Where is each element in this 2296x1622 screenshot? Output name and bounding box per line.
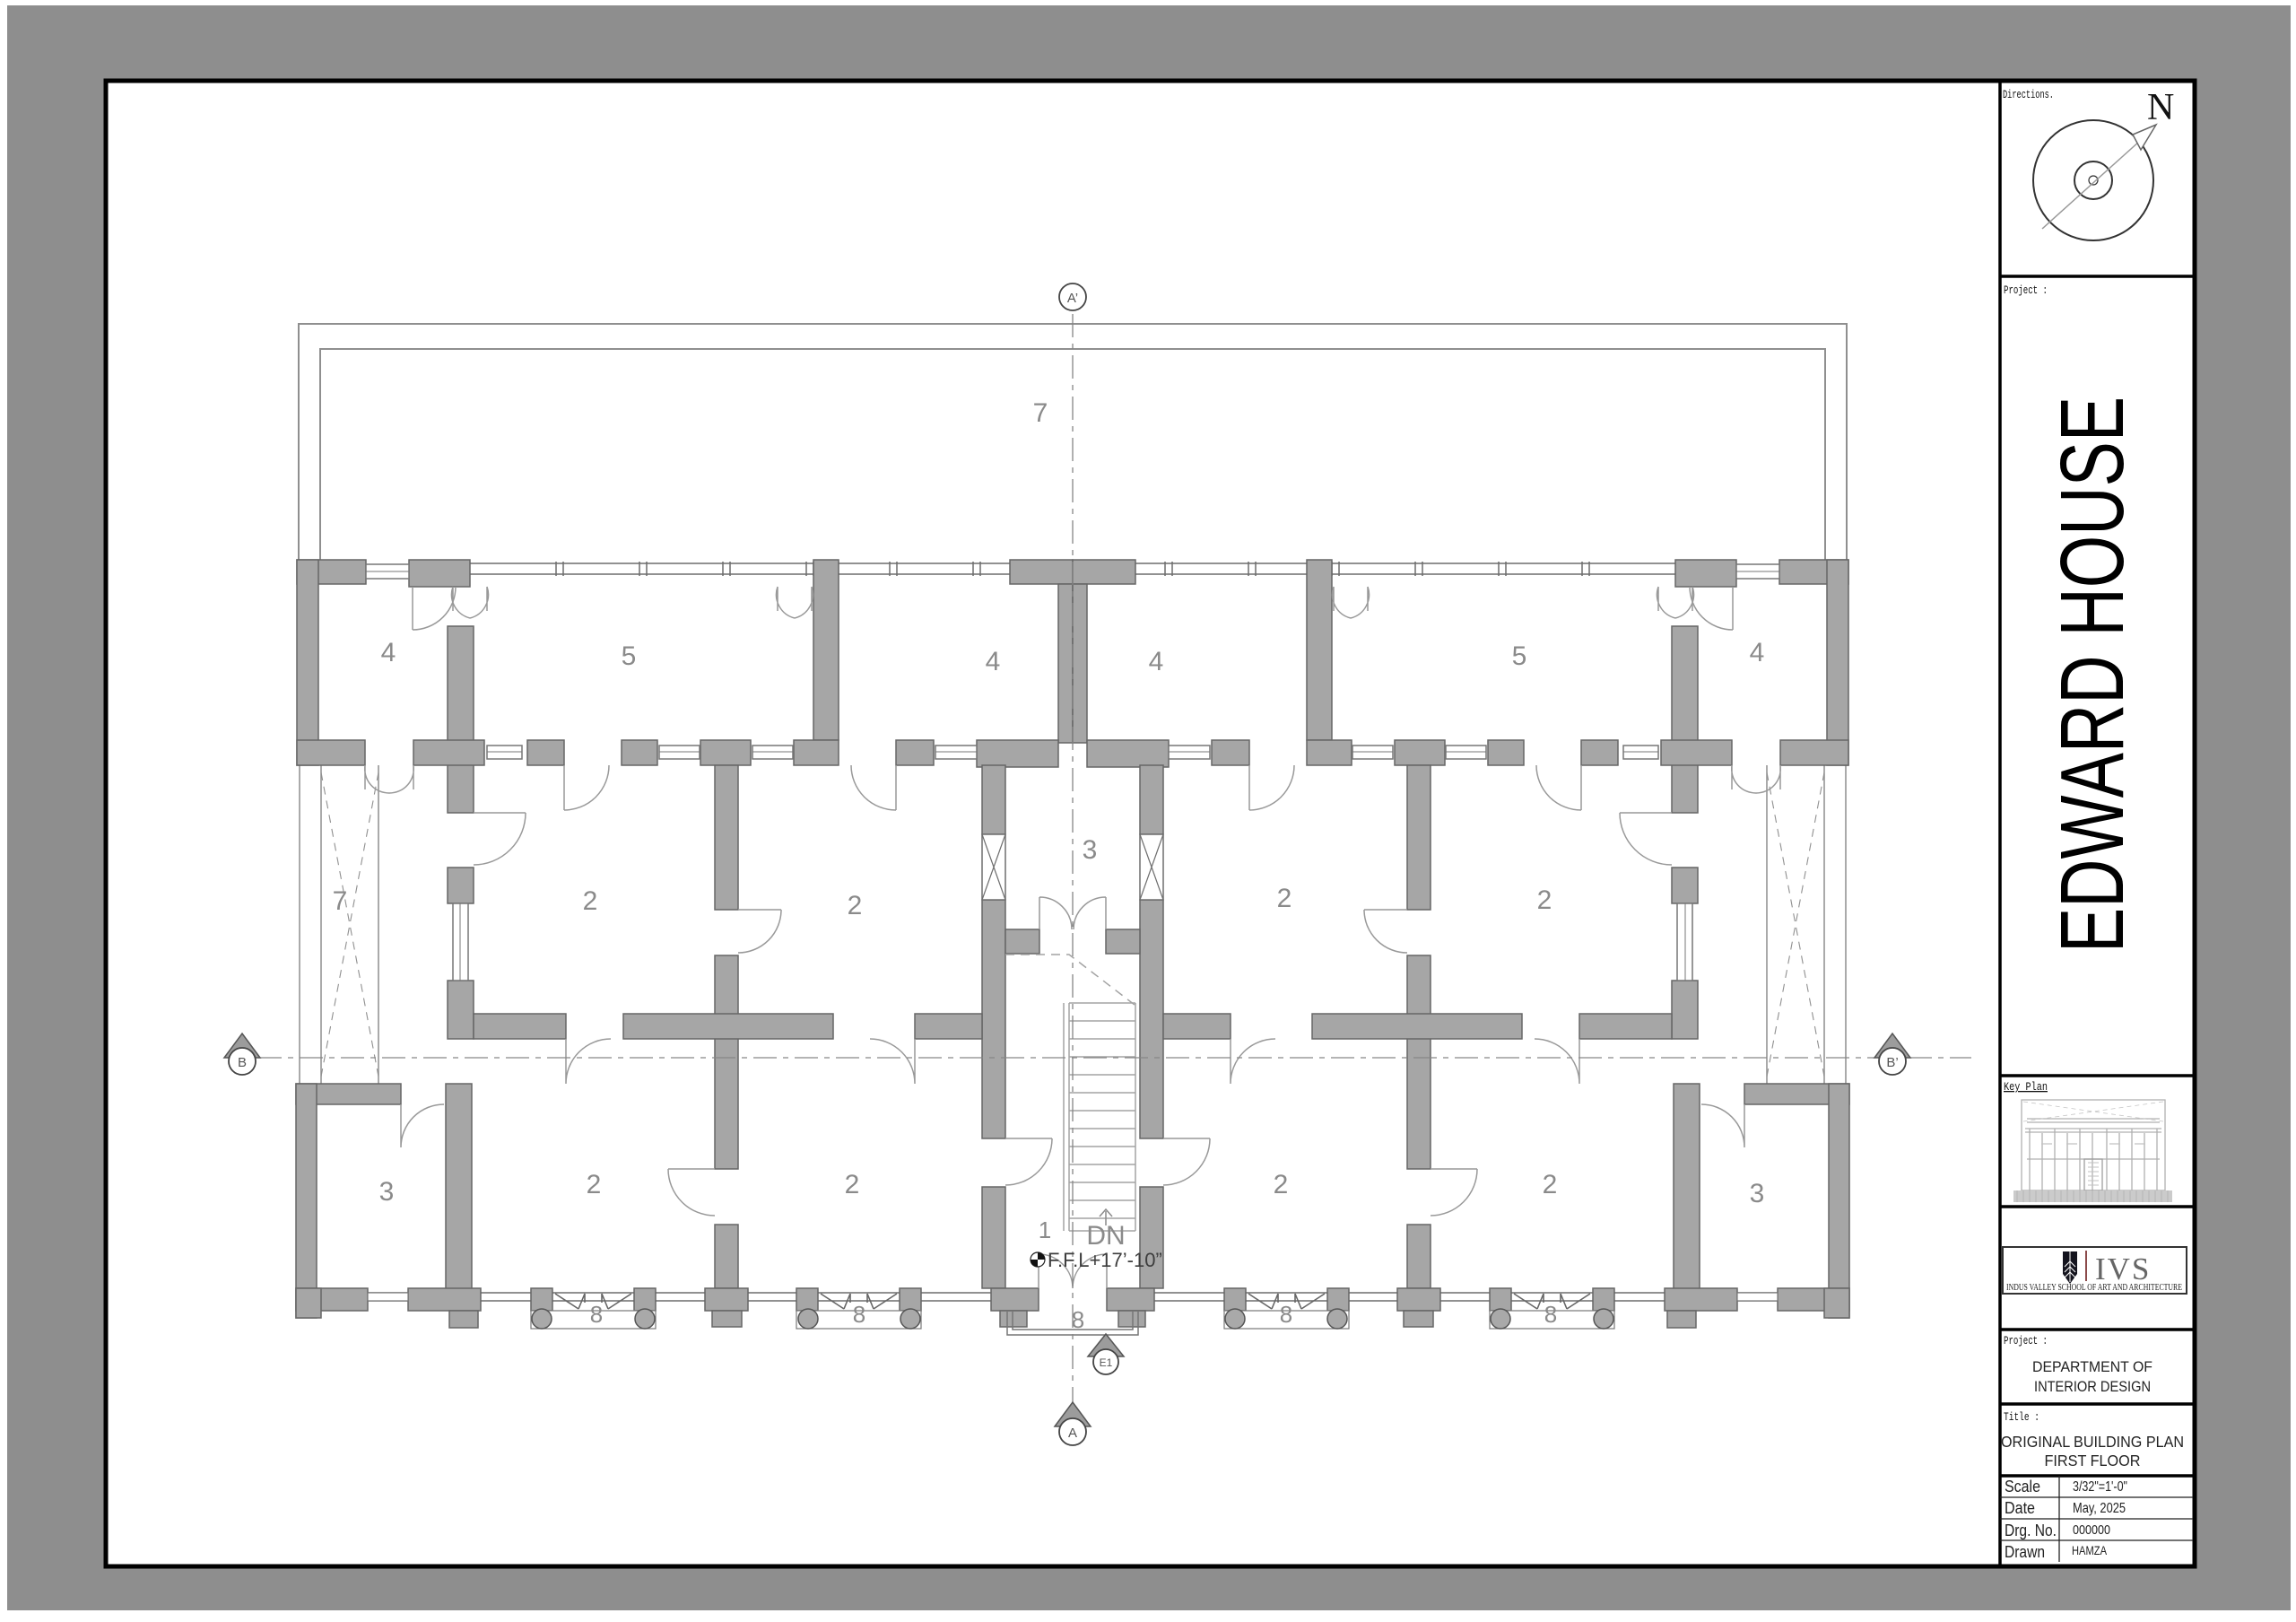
svg-text:4: 4 (1149, 647, 1164, 676)
svg-text:Drawn: Drawn (2005, 1543, 2045, 1561)
svg-text:2: 2 (1274, 1170, 1289, 1199)
svg-text:4: 4 (986, 647, 1001, 676)
svg-text:8: 8 (1544, 1301, 1557, 1328)
svg-text:2: 2 (1543, 1170, 1558, 1199)
svg-text:3: 3 (1083, 835, 1098, 865)
svg-text:B: B (238, 1055, 247, 1070)
svg-text:Title :: Title : (2004, 1410, 2039, 1424)
svg-text:5: 5 (622, 641, 637, 671)
svg-text:2: 2 (583, 886, 598, 916)
svg-text:Directions.: Directions. (2003, 88, 2054, 101)
svg-text:Project :: Project : (2004, 283, 2048, 297)
svg-text:N: N (2147, 87, 2174, 128)
svg-text:8: 8 (1280, 1301, 1292, 1328)
svg-text:000000: 000000 (2073, 1522, 2110, 1538)
svg-text:3: 3 (1750, 1179, 1765, 1208)
svg-text:2: 2 (845, 1170, 860, 1199)
svg-text:2: 2 (1537, 885, 1552, 915)
svg-text:3: 3 (379, 1177, 395, 1207)
svg-text:8: 8 (590, 1301, 603, 1328)
svg-text:EDWARD HOUSE: EDWARD HOUSE (2042, 397, 2143, 953)
svg-text:E1: E1 (1100, 1356, 1113, 1369)
svg-text:A’: A’ (1067, 291, 1078, 306)
svg-text:8: 8 (1072, 1306, 1084, 1333)
svg-text:INDUS VALLEY SCHOOL OF ART AND: INDUS VALLEY SCHOOL OF ART AND ARCHITECT… (2006, 1282, 2182, 1293)
svg-text:ORIGINAL BUILDING PLAN: ORIGINAL BUILDING PLAN (2001, 1433, 2184, 1451)
svg-text:Key Plan: Key Plan (2004, 1080, 2048, 1094)
svg-text:5: 5 (1512, 641, 1527, 671)
svg-text:Date: Date (2005, 1499, 2035, 1517)
svg-text:B’: B’ (1886, 1055, 1898, 1070)
svg-text:F.F.L+17’-10”: F.F.L+17’-10” (1048, 1249, 1162, 1271)
svg-text:DEPARTMENT OF: DEPARTMENT OF (2032, 1358, 2152, 1375)
svg-text:May, 2025: May, 2025 (2073, 1501, 2126, 1516)
svg-text:DN: DN (1086, 1221, 1125, 1251)
svg-text:2: 2 (848, 891, 863, 920)
svg-text:HAMZA: HAMZA (2072, 1543, 2108, 1557)
svg-text:7: 7 (1033, 398, 1048, 428)
svg-text:1: 1 (1039, 1216, 1051, 1243)
svg-text:2: 2 (587, 1170, 602, 1199)
svg-text:3/32"=1'-0": 3/32"=1'-0" (2073, 1479, 2127, 1495)
svg-text:7: 7 (333, 886, 348, 916)
svg-text:4: 4 (381, 638, 396, 667)
svg-text:FIRST FLOOR: FIRST FLOOR (2045, 1452, 2141, 1469)
svg-text:Project :: Project : (2004, 1334, 2048, 1347)
svg-text:Scale: Scale (2005, 1478, 2040, 1496)
svg-text:A: A (1068, 1426, 1077, 1441)
svg-text:Drg. No.: Drg. No. (2005, 1522, 2057, 1539)
svg-text:4: 4 (1750, 638, 1765, 667)
svg-text:8: 8 (853, 1301, 865, 1328)
svg-text:2: 2 (1277, 884, 1292, 913)
svg-text:INTERIOR DESIGN: INTERIOR DESIGN (2034, 1378, 2151, 1395)
